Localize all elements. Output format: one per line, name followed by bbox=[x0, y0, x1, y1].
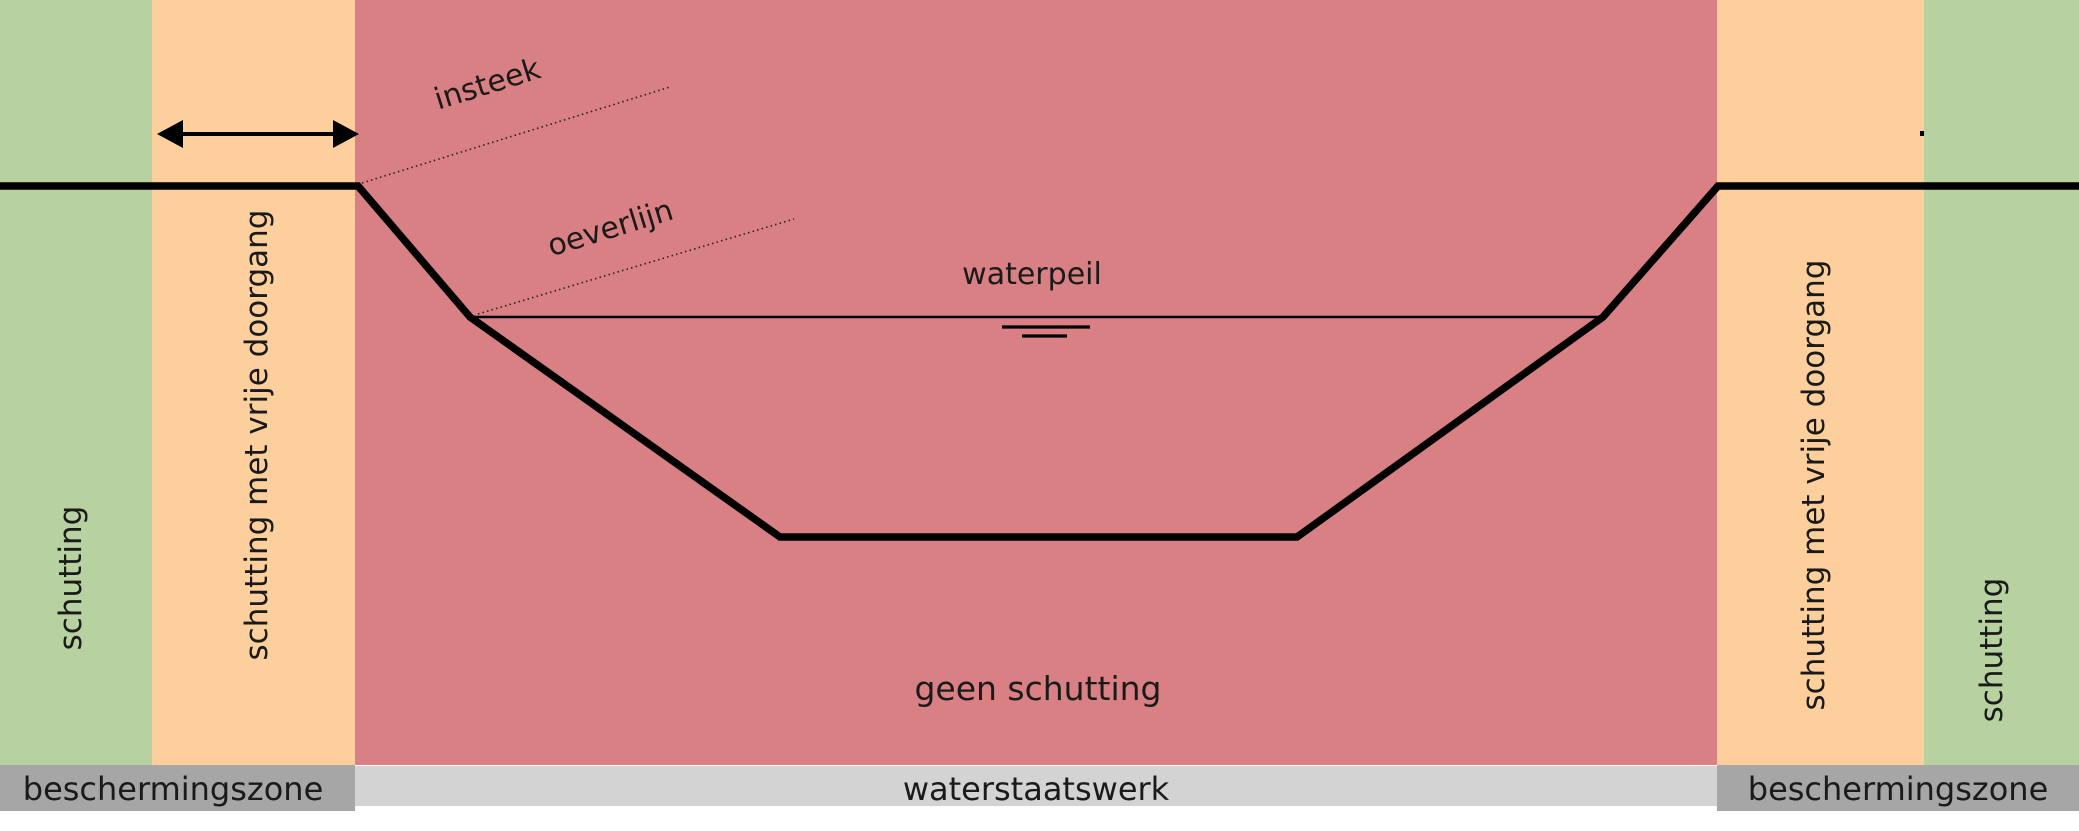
zone-label-right-orange: schutting met vrije doorgang bbox=[1796, 260, 1832, 711]
geen-schutting-label: geen schutting bbox=[914, 669, 1161, 708]
zone-label-left-green: schutting bbox=[53, 506, 89, 651]
stray-mark bbox=[1920, 131, 1924, 136]
beschermingszone-left-label: beschermingszone bbox=[23, 770, 324, 808]
waterpeil-label: waterpeil bbox=[962, 257, 1102, 292]
diagram-canvas: insteek oeverlijn waterpeil geen schutti… bbox=[0, 0, 2079, 831]
cross-section-diagram: insteek oeverlijn waterpeil geen schutti… bbox=[0, 0, 2079, 831]
zone-label-right-green: schutting bbox=[1974, 578, 2010, 723]
waterstaatswerk-label: waterstaatswerk bbox=[903, 770, 1170, 808]
zone-label-left-orange: schutting met vrije doorgang bbox=[239, 210, 275, 661]
beschermingszone-right-label: beschermingszone bbox=[1748, 770, 2049, 808]
